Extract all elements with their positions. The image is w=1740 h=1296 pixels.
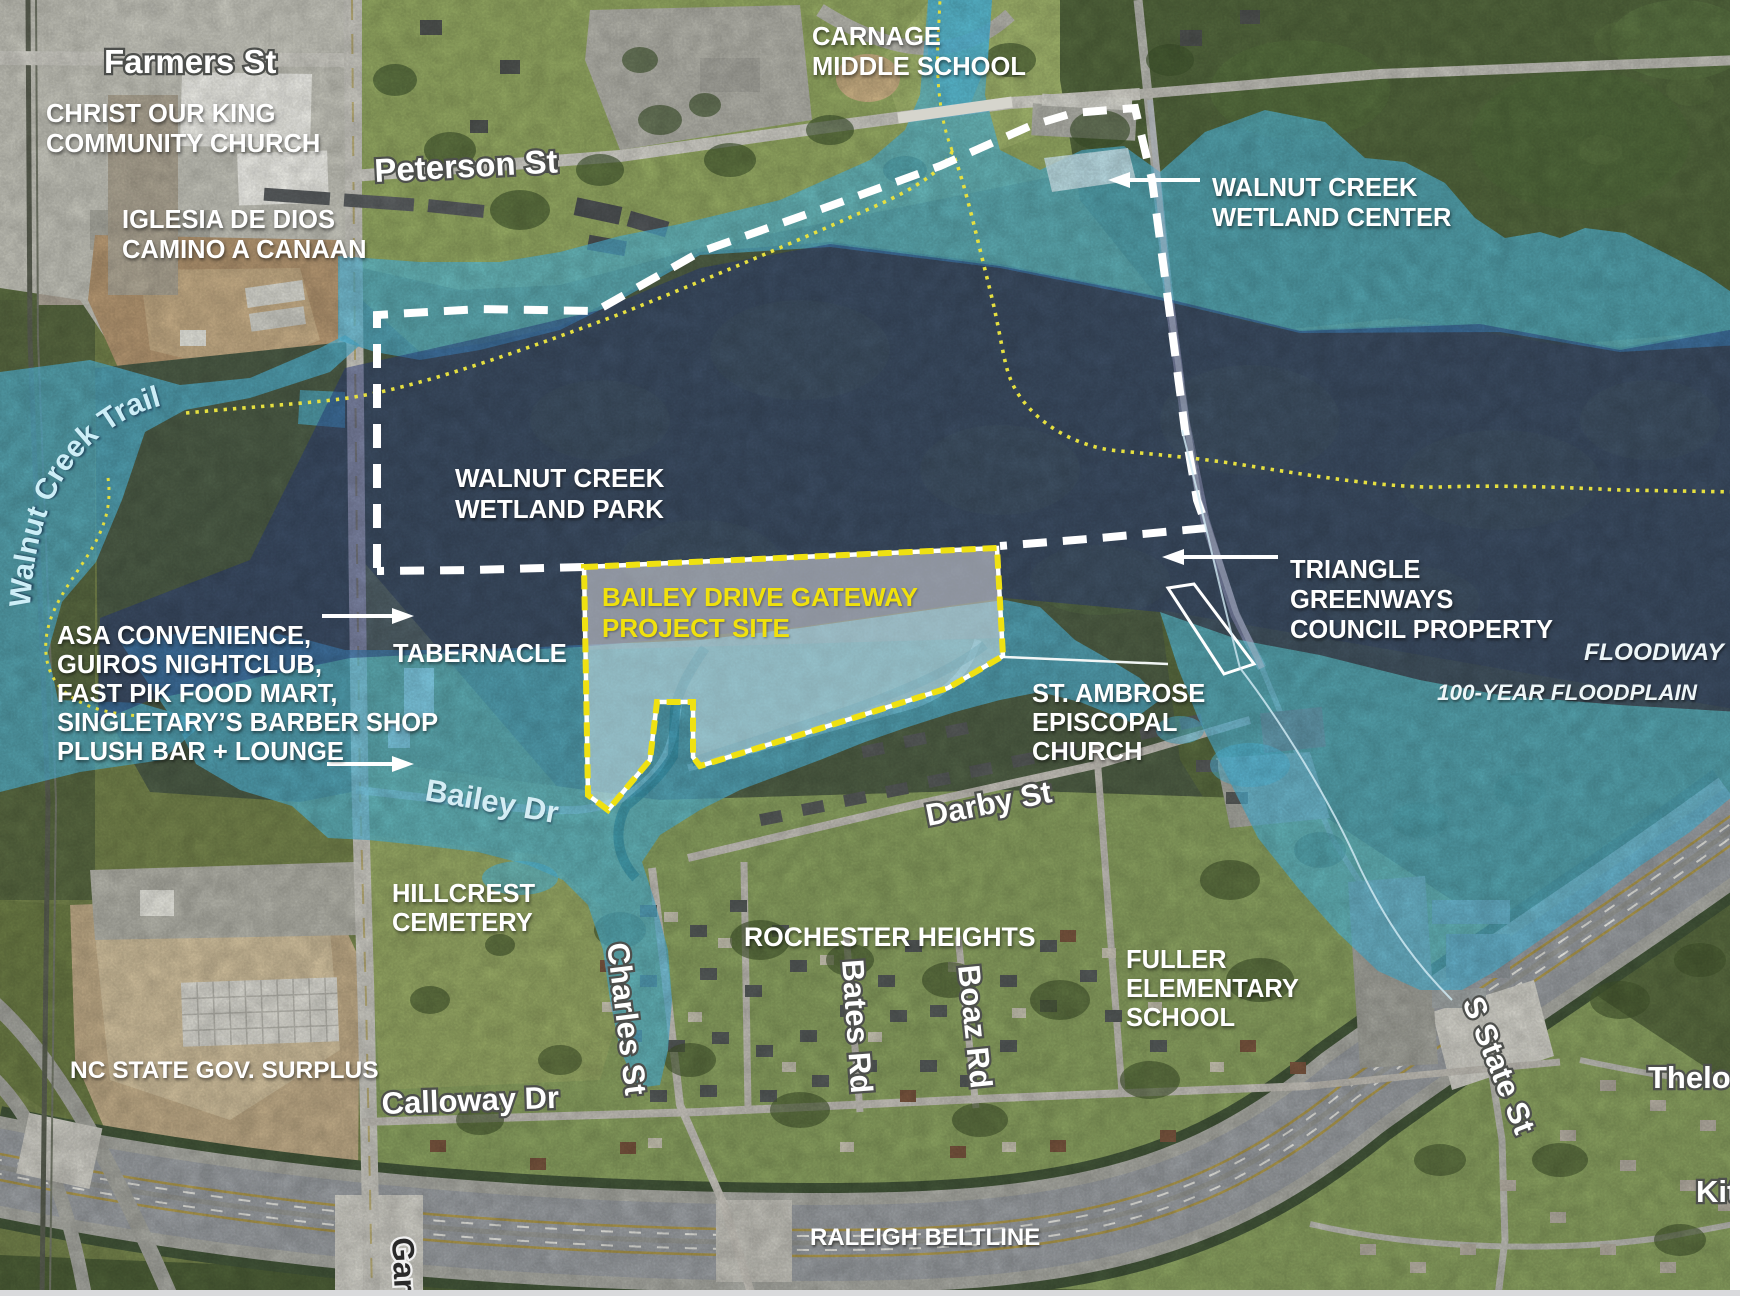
svg-text:CEMETERY: CEMETERY xyxy=(392,909,533,937)
svg-text:Thelo: Thelo xyxy=(1648,1060,1731,1095)
svg-text:ASA CONVENIENCE,: ASA CONVENIENCE, xyxy=(57,622,311,650)
svg-text:GREENWAYS: GREENWAYS xyxy=(1290,586,1453,614)
svg-text:MIDDLE SCHOOL: MIDDLE SCHOOL xyxy=(812,53,1026,81)
svg-text:FLOODWAY: FLOODWAY xyxy=(1584,639,1726,666)
svg-text:SINGLETARY’S BARBER SHOP: SINGLETARY’S BARBER SHOP xyxy=(57,709,438,737)
svg-text:SCHOOL: SCHOOL xyxy=(1126,1004,1235,1032)
svg-text:CHRIST OUR KING: CHRIST OUR KING xyxy=(46,100,276,128)
svg-text:FULLER: FULLER xyxy=(1126,946,1227,974)
svg-text:TRIANGLE: TRIANGLE xyxy=(1290,556,1420,584)
svg-text:GUIROS NIGHTCLUB,: GUIROS NIGHTCLUB, xyxy=(57,651,322,679)
svg-text:NC STATE GOV. SURPLUS: NC STATE GOV. SURPLUS xyxy=(70,1057,379,1084)
svg-text:COUNCIL PROPERTY: COUNCIL PROPERTY xyxy=(1290,616,1553,644)
svg-text:IGLESIA DE DIOS: IGLESIA DE DIOS xyxy=(122,206,335,234)
svg-text:WALNUT CREEK: WALNUT CREEK xyxy=(1212,174,1418,202)
svg-text:BAILEY DRIVE GATEWAY: BAILEY DRIVE GATEWAY xyxy=(602,582,918,612)
svg-text:COMMUNITY CHURCH: COMMUNITY CHURCH xyxy=(46,130,320,158)
svg-text:ROCHESTER HEIGHTS: ROCHESTER HEIGHTS xyxy=(744,922,1036,952)
svg-text:Farmers St: Farmers St xyxy=(104,43,276,80)
svg-text:HILLCREST: HILLCREST xyxy=(392,880,536,908)
svg-text:CARNAGE: CARNAGE xyxy=(812,23,941,51)
svg-text:TABERNACLE: TABERNACLE xyxy=(393,640,567,668)
svg-text:ELEMENTARY: ELEMENTARY xyxy=(1126,975,1299,1003)
svg-text:100-YEAR FLOODPLAIN: 100-YEAR FLOODPLAIN xyxy=(1437,680,1698,705)
svg-text:Calloway Dr: Calloway Dr xyxy=(381,1080,560,1121)
svg-text:CHURCH: CHURCH xyxy=(1032,738,1143,766)
svg-text:WALNUT CREEK: WALNUT CREEK xyxy=(455,463,665,493)
svg-text:WETLAND CENTER: WETLAND CENTER xyxy=(1212,204,1451,232)
svg-text:EPISCOPAL: EPISCOPAL xyxy=(1032,709,1177,737)
svg-text:Gar: Gar xyxy=(385,1237,423,1292)
svg-text:WETLAND PARK: WETLAND PARK xyxy=(455,494,664,524)
svg-text:ST. AMBROSE: ST. AMBROSE xyxy=(1032,680,1205,708)
svg-text:CAMINO A CANAAN: CAMINO A CANAAN xyxy=(122,236,367,264)
svg-text:PROJECT SITE: PROJECT SITE xyxy=(602,613,790,643)
svg-text:PLUSH BAR + LOUNGE: PLUSH BAR + LOUNGE xyxy=(57,738,344,766)
svg-text:RALEIGH BELTLINE: RALEIGH BELTLINE xyxy=(810,1224,1040,1251)
svg-text:FAST PIK FOOD MART,: FAST PIK FOOD MART, xyxy=(57,680,338,708)
